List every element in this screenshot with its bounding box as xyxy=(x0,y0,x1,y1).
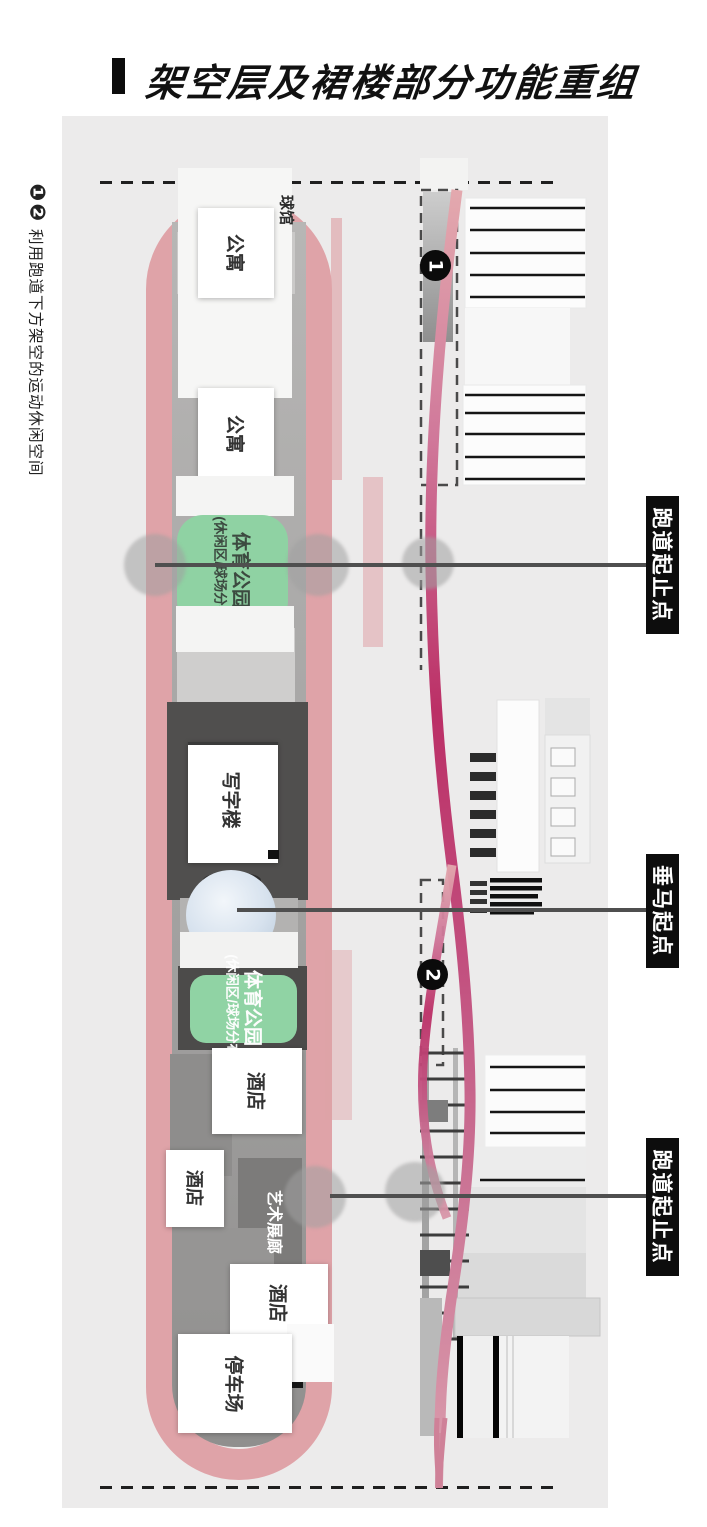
elevation-node-dot xyxy=(385,1162,445,1222)
parking-label: 停车场 xyxy=(222,1355,249,1412)
callout-track-endpoint-top: 跑道起止点 xyxy=(646,496,679,634)
figure-canvas: 架空层及裙楼部分功能重组 ❶❷ 利用跑道下方架空的运动休闲空间 球馆 公寓 公寓 xyxy=(0,0,707,1527)
callout-track-endpoint-bottom: 跑道起止点 xyxy=(646,1138,679,1276)
runway-ribbon xyxy=(431,190,470,1433)
elevation-badge-1: 1 xyxy=(420,250,451,281)
track-side-face xyxy=(363,477,383,647)
tower-slab xyxy=(465,308,570,388)
parking-deck xyxy=(287,1324,334,1382)
window-slits xyxy=(470,753,496,857)
office-detail xyxy=(268,850,279,859)
apartment-label: 公寓 xyxy=(223,415,250,453)
mid-tower xyxy=(497,700,539,872)
basement-wall xyxy=(493,1336,499,1438)
track-side-face xyxy=(325,950,352,1120)
lower-slab xyxy=(457,1253,586,1300)
elevation-view xyxy=(395,150,610,1510)
leader-line-bottom xyxy=(330,1194,646,1198)
hotel-label: 酒店 xyxy=(244,1072,271,1110)
track-side-face xyxy=(331,218,342,480)
elevation-top-slab xyxy=(420,158,468,190)
basement-bay xyxy=(499,1336,569,1438)
hotel-label: 酒店 xyxy=(182,1170,208,1206)
apartment-label: 公寓 xyxy=(223,234,250,272)
basement-wall xyxy=(457,1336,463,1438)
ground-slab xyxy=(455,1298,600,1336)
podium-roof-block xyxy=(176,606,294,652)
sports-park-label-sub: (休闲区/球场分布) xyxy=(223,954,240,1061)
sports-park-label: 体育公园 (休闲区/球场分布) xyxy=(223,954,264,1061)
elevation-badge-2: 2 xyxy=(417,959,448,990)
callout-vertical-marathon-start: 垂马起点 xyxy=(646,854,679,968)
stadium-label: 球馆 xyxy=(277,195,298,225)
mid-building-slab xyxy=(545,698,590,735)
leader-line-middle xyxy=(237,908,646,912)
sports-park-label-main: 体育公园 xyxy=(240,954,264,1061)
basement-bay xyxy=(463,1336,493,1438)
hotel-label: 酒店 xyxy=(266,1284,293,1322)
office-label: 写字楼 xyxy=(219,771,246,828)
ladder-block xyxy=(420,1250,450,1276)
podium-roof-block xyxy=(176,476,294,516)
leader-line-top xyxy=(155,563,646,567)
